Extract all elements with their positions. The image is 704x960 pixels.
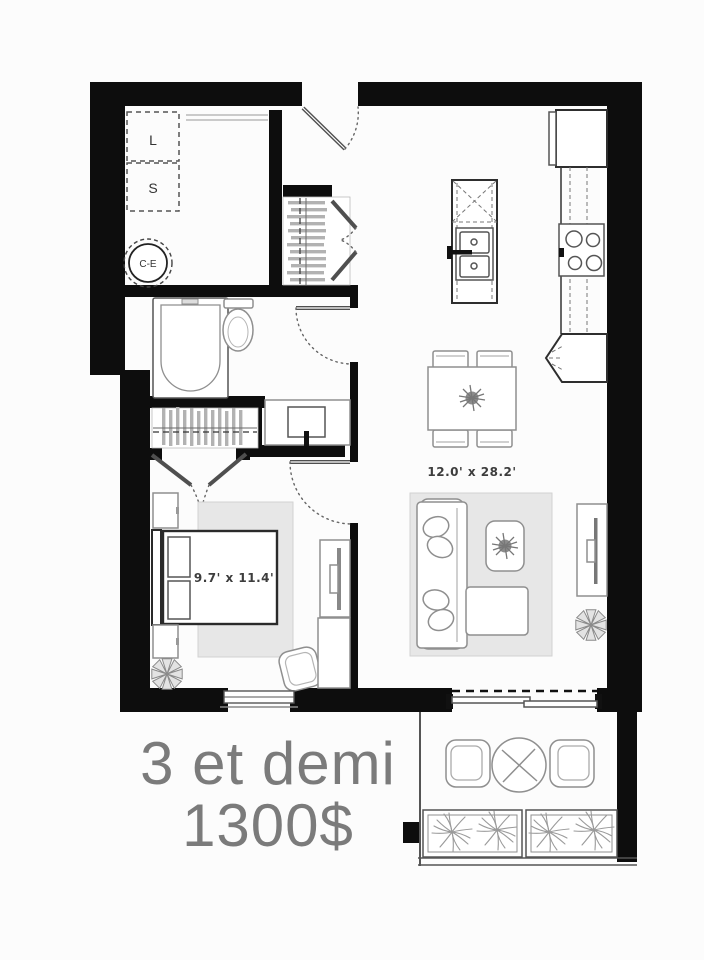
- vanity-sink: [265, 400, 350, 446]
- floor-plan-page: L S C-E: [0, 0, 704, 960]
- bedroom-window: [220, 691, 298, 707]
- sliding-door: [446, 691, 602, 709]
- water-heater-label: C-E: [139, 259, 157, 270]
- balcony: [418, 691, 637, 866]
- unit-type-label: 3 et demi: [140, 730, 396, 797]
- kitchen-island: [447, 180, 497, 303]
- kitchen: [447, 110, 607, 382]
- toilet-icon: [223, 299, 253, 351]
- stove-icon: [559, 224, 604, 276]
- planter-boxes: [423, 810, 617, 857]
- coffee-table: [486, 521, 524, 571]
- entry-closet: [283, 197, 356, 285]
- balcony-chair: [446, 740, 490, 787]
- pillow: [168, 537, 190, 577]
- floor-plan-drawing: L S C-E: [0, 0, 704, 960]
- entry-door: [303, 107, 358, 149]
- bedroom: 9.7' x 11.4': [152, 462, 352, 707]
- living-dining-dimension-label: 12.0' x 28.2': [427, 465, 516, 479]
- dryer-label: S: [148, 180, 157, 196]
- listing-text: 3 et demi 1300$: [140, 730, 396, 859]
- tv-console: [577, 504, 607, 596]
- chaise: [466, 587, 528, 635]
- bathtub-icon: [153, 298, 228, 398]
- nightstand: [153, 625, 178, 658]
- bedroom-dimension-label: 9.7' x 11.4': [194, 571, 274, 585]
- balcony-chair: [550, 740, 594, 787]
- balcony-table: [492, 738, 546, 792]
- tv-bracket: [330, 565, 338, 593]
- living-plant: [576, 610, 606, 640]
- dining-area: 12.0' x 28.2': [427, 351, 516, 479]
- washer-label: L: [149, 132, 157, 148]
- headboard: [152, 530, 161, 625]
- bedroom-dresser: [318, 618, 350, 688]
- price-label: 1300$: [182, 792, 354, 859]
- bedroom-chair: [277, 645, 324, 693]
- bedroom-door: [290, 462, 352, 524]
- bathroom-door: [296, 308, 352, 364]
- corner-cabinet: [546, 334, 607, 382]
- bedroom-plant: [152, 659, 182, 689]
- refrigerator-icon: [549, 110, 607, 167]
- laundry-area: L S C-E: [124, 112, 268, 287]
- living-room: [410, 493, 607, 656]
- nightstand: [153, 493, 178, 528]
- pillow: [168, 581, 190, 619]
